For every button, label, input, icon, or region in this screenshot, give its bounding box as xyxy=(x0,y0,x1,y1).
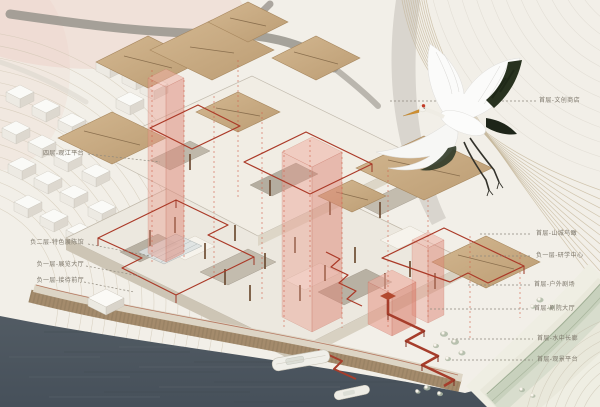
label-right-3: 首层-户外剧场 xyxy=(534,282,575,289)
label-right-5: 首层-水中长廊 xyxy=(537,336,578,343)
label-right-1: 首层-山城鸟瞰 xyxy=(536,231,577,238)
label-left-0: 四层-观江平台 xyxy=(0,151,84,158)
label-right-0: 首层-文创商店 xyxy=(539,98,580,105)
crane-red-crown xyxy=(422,104,425,107)
label-left-3: 负一层-接待前厅 xyxy=(0,278,84,285)
label-left-2: 负一层-展览大厅 xyxy=(0,262,84,269)
label-right-2: 负一层-研学中心 xyxy=(536,253,583,260)
architecture-diagram-canvas: 首层-文创商店 首层-山城鸟瞰 负一层-研学中心 首层-户外剧场 首层-剧院大厅… xyxy=(0,0,600,407)
axonometric-scene xyxy=(0,0,600,407)
label-right-4: 首层-剧院大厅 xyxy=(534,306,575,313)
label-right-6: 首层-观景平台 xyxy=(537,357,578,364)
label-left-1: 负二层-特色展陈馆 xyxy=(0,240,84,247)
crane-eye xyxy=(424,108,425,109)
